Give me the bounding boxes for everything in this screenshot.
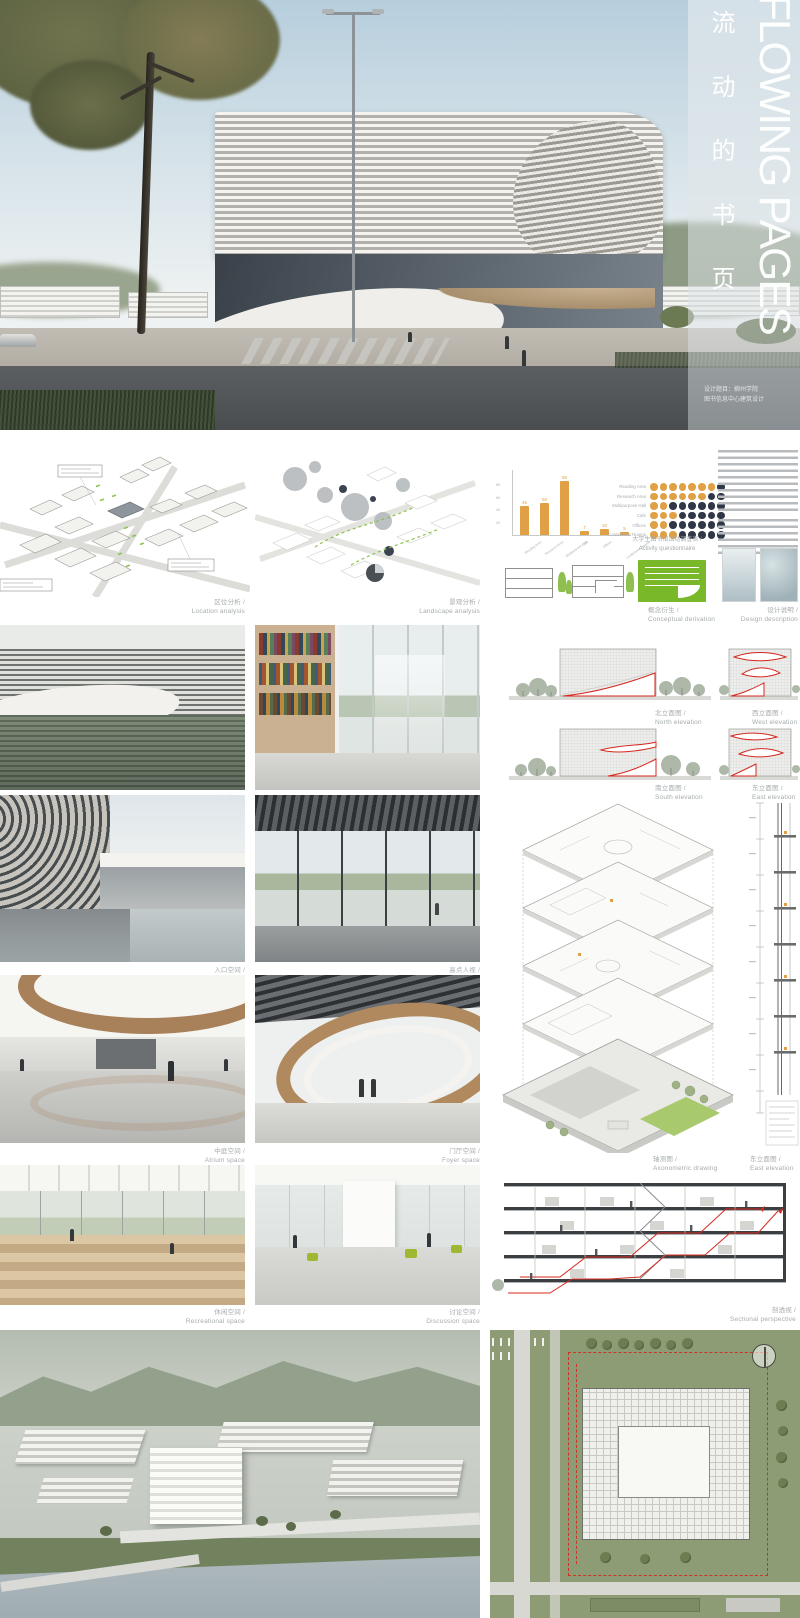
foyer-space-caption: 门厅空间 / Foyer space (442, 1147, 480, 1166)
balcony-floor (255, 926, 480, 962)
recreational-space-photo (0, 1165, 245, 1305)
floor (255, 1103, 480, 1143)
caption-en: Conceptual derivation (648, 615, 715, 624)
caption-zh: 区位分析 / (192, 598, 245, 607)
title-english-vertical: FLOWING PAGES (748, 0, 800, 430)
bar-Reading Area: 45Reading Area (518, 470, 531, 535)
library-building (215, 112, 663, 344)
books-row (259, 633, 331, 655)
page-curl (595, 580, 617, 593)
west-elevation-caption: 西立面图 / West elevation (752, 709, 797, 728)
person (168, 1061, 174, 1081)
recreational-space-caption: 休闲空间 / Recreational space (186, 1308, 245, 1327)
person (224, 1059, 228, 1071)
discussion-space-photo (255, 1165, 480, 1305)
tree (634, 1340, 644, 1350)
light-shaft (375, 655, 445, 755)
tree (680, 1552, 691, 1563)
location-analysis-caption: 区位分析 / Location analysis (192, 598, 245, 617)
library-cube (150, 1448, 242, 1524)
conceptual-derivation-caption: 概念衍生 / Conceptual derivation (648, 606, 715, 625)
concept-line (645, 579, 699, 580)
caption-zh: 入口空间 / (197, 966, 245, 975)
dot-row-Offices: Offices (598, 520, 736, 530)
glass-mullions (255, 831, 480, 926)
north-elevation-caption: 北立面图 / North elevation (655, 709, 702, 728)
tree (256, 1516, 268, 1526)
parking-row (492, 1352, 512, 1360)
caption-zh: 设计说明 / (741, 606, 798, 615)
design-description-text (718, 450, 798, 558)
person (408, 332, 412, 342)
concept-line (506, 588, 552, 589)
books-row (259, 693, 331, 715)
tree (776, 1452, 787, 1463)
y-tick: 80 (496, 483, 500, 487)
tree (600, 1552, 611, 1563)
bar-Research Area: 50Research Area (538, 470, 551, 535)
caption-en: Discussion space (426, 1317, 480, 1326)
bar-Cafe: 7Cafe (578, 470, 591, 535)
site-plan (490, 1330, 800, 1618)
concept-line (645, 573, 699, 574)
person (505, 336, 509, 349)
tree (100, 1526, 112, 1536)
text-paragraph (718, 450, 798, 514)
tree (776, 1400, 787, 1411)
tree (640, 1554, 650, 1564)
concept-book-diagram (505, 568, 553, 598)
distant-building (0, 286, 120, 318)
project-credit: 设计题目：柳州学院 图书信息中心建筑设计 (704, 386, 764, 405)
person (359, 1079, 364, 1097)
green-chair (405, 1249, 417, 1258)
green-chair (451, 1245, 462, 1253)
campus-building (14, 1430, 145, 1464)
concept-tree (558, 572, 566, 592)
foyer-space-photo (255, 975, 480, 1143)
axonometric-exploded-drawing (490, 795, 745, 1153)
parking-row (492, 1338, 512, 1346)
caption-en: Landscape analysis (419, 607, 480, 616)
campus-building (36, 1478, 133, 1504)
entrance-glass (100, 867, 245, 909)
person (427, 1233, 431, 1247)
person (70, 1229, 74, 1241)
caption-zh: 概念衍生 / (648, 606, 715, 615)
caption-en: Sectional perspective (730, 1315, 796, 1324)
water-reflection (0, 909, 130, 962)
caption-zh: 中庭空间 / (205, 1147, 245, 1156)
louver-ceiling (255, 795, 480, 831)
aerial-view-render (0, 1330, 480, 1618)
caption-zh: 讨论空间 / (426, 1308, 480, 1317)
car (0, 334, 36, 347)
caption-en: West elevation (752, 718, 797, 727)
caption-zh: 剖透视 / (730, 1306, 796, 1315)
sectional-perspective-caption: 剖透视 / Sectional perspective (730, 1306, 796, 1325)
tree (330, 1510, 341, 1519)
books-row (259, 663, 331, 685)
questionnaire-dot-matrix: Reading AreaResearch AreaMultipurpose Ha… (598, 482, 736, 540)
y-tick: 40 (496, 508, 500, 512)
person (170, 1243, 174, 1254)
presentation-board: FLOWING PAGES 流动的书页 设计题目：柳州学院 图书信息中心建筑设计 (0, 0, 800, 1618)
high-altitude-photo (255, 795, 480, 962)
design-description-caption: 设计说明 / Design description (741, 606, 798, 625)
street-lamp-pole (352, 12, 355, 342)
tree-canopy (30, 60, 150, 150)
east-elevation-drawing (718, 722, 800, 790)
south-elevation-drawing (505, 722, 715, 790)
bar-Multipurpose Hall: 85Multipurpose Hall (558, 470, 571, 535)
road-vertical (514, 1330, 530, 1618)
tree (778, 1426, 788, 1436)
person (293, 1235, 297, 1248)
compass-icon (752, 1344, 776, 1368)
white-canopy (100, 853, 245, 867)
location-analysis-diagram (0, 447, 250, 597)
texture-image-water (760, 548, 798, 602)
floor (255, 753, 480, 790)
water-tint (0, 715, 245, 790)
floor (255, 1247, 480, 1305)
caption-zh: 景观分析 / (419, 598, 480, 607)
dot-row-Research Area: Research Area (598, 492, 736, 502)
concept-green-diagram (638, 560, 706, 602)
green-chair (307, 1253, 318, 1261)
entrance-space-photo (0, 795, 245, 962)
tree (602, 1340, 612, 1350)
ceiling-lights (0, 1165, 245, 1191)
wall-section-detail-drawing (748, 795, 800, 1151)
red-dashed-line (576, 1364, 578, 1564)
landscape-analysis-diagram (255, 447, 480, 597)
questionnaire-caption-en: Activity questionnaire (596, 545, 738, 554)
page-curl (678, 585, 700, 598)
tree (618, 1338, 629, 1349)
mullions (0, 1191, 245, 1235)
landscape-bed (590, 1598, 700, 1612)
concept-line (506, 578, 552, 579)
person (20, 1059, 24, 1071)
credit-line-1: 设计题目：柳州学院 (704, 386, 764, 396)
road-vertical (550, 1330, 560, 1618)
y-tick: 60 (496, 496, 500, 500)
concept-tree (626, 572, 634, 592)
person (371, 1079, 376, 1097)
ring-reflection (30, 1075, 245, 1131)
caption-zh: 东立面图 / (752, 784, 796, 793)
questionnaire-caption-zh: 大学生图书馆活动调查表 / (596, 536, 738, 545)
atrium-space-caption: 中庭空间 / Atrium space (205, 1147, 245, 1166)
concept-line (573, 576, 623, 577)
landscape-analysis-caption: 景观分析 / Landscape analysis (419, 598, 480, 617)
caption-zh: 北立面图 / (655, 709, 702, 718)
caption-zh: 门厅空间 / (442, 1147, 480, 1156)
facade-effect-photo (0, 625, 245, 790)
dot-row-Multipurpose Hall: Multipurpose Hall (598, 501, 736, 511)
road-horizontal (490, 1582, 800, 1595)
north-elevation-drawing (505, 640, 715, 710)
dot-row-Reading Area: Reading Area (598, 482, 736, 492)
concept-line (645, 567, 699, 568)
foreground-grass (0, 390, 215, 430)
discussion-space-caption: 讨论空间 / Discussion space (426, 1308, 480, 1327)
caption-zh: 南立面图 / (655, 784, 703, 793)
caption-zh: 高点人视 / (421, 966, 480, 975)
caption-en: Design description (741, 615, 798, 624)
questionnaire-caption: 大学生图书馆活动调查表 / Activity questionnaire (596, 536, 738, 553)
concept-flip-diagram (572, 565, 624, 598)
tree (778, 1478, 788, 1488)
crosswalk (241, 338, 450, 364)
tree (682, 1338, 693, 1349)
tree (586, 1338, 597, 1349)
y-tick: 20 (496, 521, 500, 525)
concept-tree (566, 580, 572, 594)
title-chinese-vertical: 流动的书页 (703, 10, 738, 330)
title-strip: FLOWING PAGES 流动的书页 (688, 0, 800, 430)
dot-row-Cafe: Cafe (598, 511, 736, 521)
plaza-patch (726, 1598, 780, 1612)
texture-image-mist (722, 548, 756, 602)
dark-doorway (96, 1039, 156, 1069)
parking-row (534, 1338, 548, 1346)
caption-en: North elevation (655, 718, 702, 727)
caption-zh: 东立面图 / (750, 1155, 794, 1164)
tree (666, 1340, 676, 1350)
reading-space-photo (255, 625, 480, 790)
credit-line-2: 图书信息中心建筑设计 (704, 396, 764, 406)
atrium-space-photo (0, 975, 245, 1143)
tree (286, 1522, 296, 1531)
tree (650, 1338, 661, 1349)
red-dashed-boundary (568, 1352, 768, 1576)
wood-steps (0, 1235, 245, 1305)
street-lamp-head (322, 9, 334, 14)
caption-zh: 轴测图 / (653, 1155, 718, 1164)
hero-render: FLOWING PAGES 流动的书页 设计题目：柳州学院 图书信息中心建筑设计 (0, 0, 800, 430)
person (435, 903, 439, 915)
caption-zh: 西立面图 / (752, 709, 797, 718)
caption-zh: 休闲空间 / (186, 1308, 245, 1317)
caption-en: Recreational space (186, 1317, 245, 1326)
street-lamp-head (372, 9, 384, 14)
sectional-perspective-drawing (490, 1165, 800, 1300)
person (522, 350, 526, 366)
caption-en: Location analysis (192, 607, 245, 616)
west-elevation-drawing (718, 640, 800, 710)
campus-building (327, 1460, 463, 1496)
